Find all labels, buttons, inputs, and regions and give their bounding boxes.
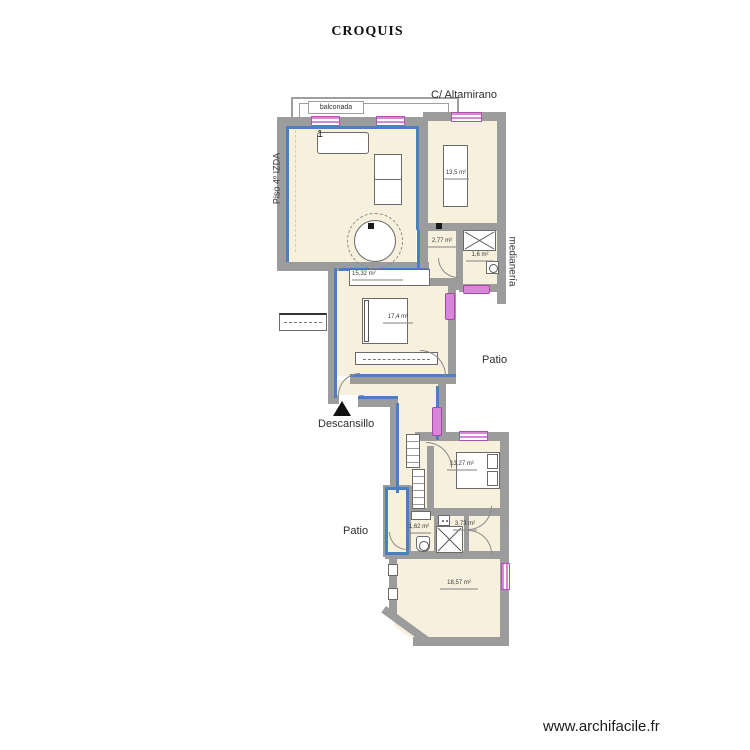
wall[interactable] [500, 432, 509, 646]
wall[interactable] [419, 121, 428, 230]
party-wall-label: medianería [503, 226, 518, 298]
door-arc[interactable] [338, 373, 360, 395]
label-smudge [440, 588, 477, 590]
window[interactable] [376, 116, 405, 126]
wall[interactable] [350, 376, 456, 384]
window[interactable] [311, 116, 340, 126]
archifacile-link[interactable]: www.archifacile.fr [543, 718, 660, 735]
label-smudge [443, 178, 469, 180]
sink-tap-icon [442, 520, 444, 522]
area-label-bedroom-top-right: 13,5 m² [441, 170, 471, 180]
area-label-bathroom: 3,73 m² [451, 521, 479, 531]
patio-left-label: Patio [343, 525, 368, 537]
closet-corridor-upper[interactable] [406, 434, 420, 468]
closet-x-icon [464, 231, 495, 250]
armchair[interactable] [374, 179, 402, 205]
area-label-bedroom-middle: 17,4 m² [380, 314, 416, 324]
label-smudge [453, 529, 477, 531]
toilet-bowl-icon [419, 541, 429, 551]
junction-marker [368, 223, 374, 229]
ac-line [284, 322, 322, 323]
pillow [487, 454, 498, 469]
wall[interactable] [277, 117, 428, 126]
wall[interactable] [413, 637, 508, 646]
window[interactable] [459, 431, 488, 441]
label-smudge [466, 260, 495, 262]
dining-table[interactable] [354, 220, 396, 262]
area-label-salon-bottom: 18,57 m² [437, 580, 481, 590]
north-triangle-icon [333, 401, 351, 416]
label-smudge [428, 246, 457, 248]
balcony-label-box: balconada [308, 101, 364, 114]
window[interactable] [451, 112, 482, 122]
area-label-hall: 2,77 m² [425, 238, 459, 248]
headboard [364, 300, 369, 342]
dimension-guide [295, 130, 296, 252]
wc-shelf[interactable] [411, 511, 431, 520]
washer-drum-icon [489, 264, 498, 273]
label-smudge [383, 322, 414, 324]
floor-plan: CROQUIS www.archifacile.fr balconada [0, 0, 750, 750]
area-label-bedroom-bottom: 13,27 m² [444, 461, 480, 471]
armchair[interactable] [374, 154, 402, 180]
junction-marker [436, 223, 442, 229]
wall-vent [388, 588, 398, 600]
pink-door[interactable] [445, 293, 455, 320]
area-label-storage: 1,6 m² [463, 252, 497, 262]
furniture-number-label: 1 [315, 129, 325, 141]
pink-door[interactable] [463, 285, 490, 294]
label-smudge [352, 279, 403, 281]
washing-machine[interactable] [486, 261, 499, 274]
selected-wall-stripe[interactable] [396, 403, 399, 493]
area-label-wc: 1,62 m² [405, 524, 433, 534]
pillow [487, 471, 498, 486]
closet-crossed[interactable] [463, 230, 496, 251]
label-smudge [447, 469, 478, 471]
street-label: C/ Altamirano [431, 89, 497, 101]
sink[interactable] [438, 515, 450, 526]
toilet[interactable] [416, 536, 430, 552]
window[interactable] [501, 563, 510, 590]
wall-vent [388, 564, 398, 576]
ac-unit[interactable] [279, 313, 327, 331]
area-label-wardrobe: 15,32 m² [352, 271, 412, 281]
page-title: CROQUIS [0, 24, 735, 40]
pink-door[interactable] [432, 407, 442, 436]
selected-wall-stripe[interactable] [358, 396, 398, 399]
selected-wall-stripe[interactable] [334, 268, 337, 398]
selected-wall-stripe[interactable] [416, 126, 419, 230]
closet-corridor-lower[interactable] [412, 469, 425, 509]
label-smudge [407, 532, 431, 534]
landing-label: Descansillo [318, 418, 374, 430]
balcony-label: balconada [320, 104, 352, 111]
patio-right-label: Patio [482, 354, 507, 366]
selected-wall-stripe[interactable] [286, 126, 417, 129]
floor-label: Piso 4º IZDA [272, 139, 287, 219]
